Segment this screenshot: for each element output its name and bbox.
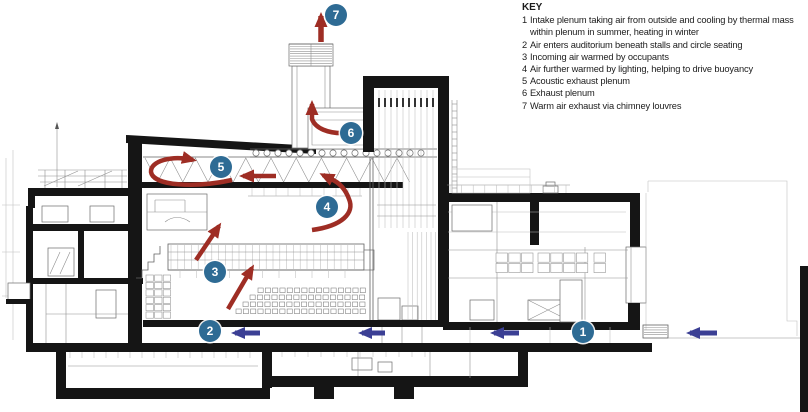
arrow-occupant-warmed-1 bbox=[196, 226, 219, 260]
adjacent-building-outline bbox=[648, 181, 808, 412]
stalls-seating bbox=[146, 275, 365, 318]
key-item-number: 7 bbox=[522, 100, 530, 112]
step-badge-1: 1 bbox=[572, 321, 594, 343]
step-badge-2: 2 bbox=[199, 320, 221, 342]
roof-vent bbox=[543, 186, 558, 193]
step-badge-5: 5 bbox=[210, 156, 232, 178]
key-item-number: 4 bbox=[522, 63, 530, 75]
fly-tower bbox=[363, 76, 457, 343]
left-wing bbox=[6, 170, 143, 345]
key-item-list: 1Intake plenum taking air from outside a… bbox=[522, 14, 796, 112]
key-item-text: Air enters auditorium beneath stalls and… bbox=[530, 39, 796, 51]
key-item-number: 6 bbox=[522, 87, 530, 99]
circle-seating bbox=[168, 244, 374, 278]
key-item: 6Exhaust plenum bbox=[522, 87, 796, 99]
key-item-text: Air further warmed by lighting, helping … bbox=[530, 63, 796, 75]
neighbour-wall bbox=[800, 266, 808, 412]
key-item: 5Acoustic exhaust plenum bbox=[522, 75, 796, 87]
step-badge-7: 7 bbox=[325, 4, 347, 26]
ceiling-hangers bbox=[70, 352, 425, 358]
key-item-number: 2 bbox=[522, 39, 530, 51]
window bbox=[626, 247, 646, 303]
figure-canvas: KEY 1Intake plenum taking air from outsi… bbox=[0, 0, 808, 412]
step-badge-3: 3 bbox=[204, 261, 226, 283]
key-item: 2Air enters auditorium beneath stalls an… bbox=[522, 39, 796, 51]
right-wing bbox=[443, 169, 646, 330]
step-badge-4: 4 bbox=[316, 196, 338, 218]
key-item: 4Air further warmed by lighting, helping… bbox=[522, 63, 796, 75]
key-item: 7Warm air exhaust via chimney louvres bbox=[522, 100, 796, 112]
key-item-text: Acoustic exhaust plenum bbox=[530, 75, 796, 87]
access-ladder bbox=[452, 100, 457, 196]
ceiling-void-slab bbox=[253, 150, 424, 156]
intake-louvre bbox=[643, 325, 668, 338]
key-title: KEY bbox=[522, 2, 796, 14]
key-item: 3Incoming air warmed by occupants bbox=[522, 51, 796, 63]
key-item-number: 5 bbox=[522, 75, 530, 87]
side-gallery-steps bbox=[146, 275, 171, 318]
intake-plenum bbox=[26, 320, 806, 352]
key-item-number: 1 bbox=[522, 14, 530, 38]
safety-curtain bbox=[370, 157, 373, 320]
key-item-text: Intake plenum taking air from outside an… bbox=[530, 14, 796, 38]
basement bbox=[56, 352, 528, 399]
key-legend: KEY 1Intake plenum taking air from outsi… bbox=[522, 2, 796, 112]
key-item-text: Warm air exhaust via chimney louvres bbox=[530, 100, 796, 112]
key-item: 1Intake plenum taking air from outside a… bbox=[522, 14, 796, 38]
step-badge-6: 6 bbox=[340, 122, 362, 144]
key-item-text: Incoming air warmed by occupants bbox=[530, 51, 796, 63]
key-item-text: Exhaust plenum bbox=[530, 87, 796, 99]
shelving bbox=[496, 253, 605, 273]
key-item-number: 3 bbox=[522, 51, 530, 63]
fly-lines bbox=[378, 90, 434, 228]
